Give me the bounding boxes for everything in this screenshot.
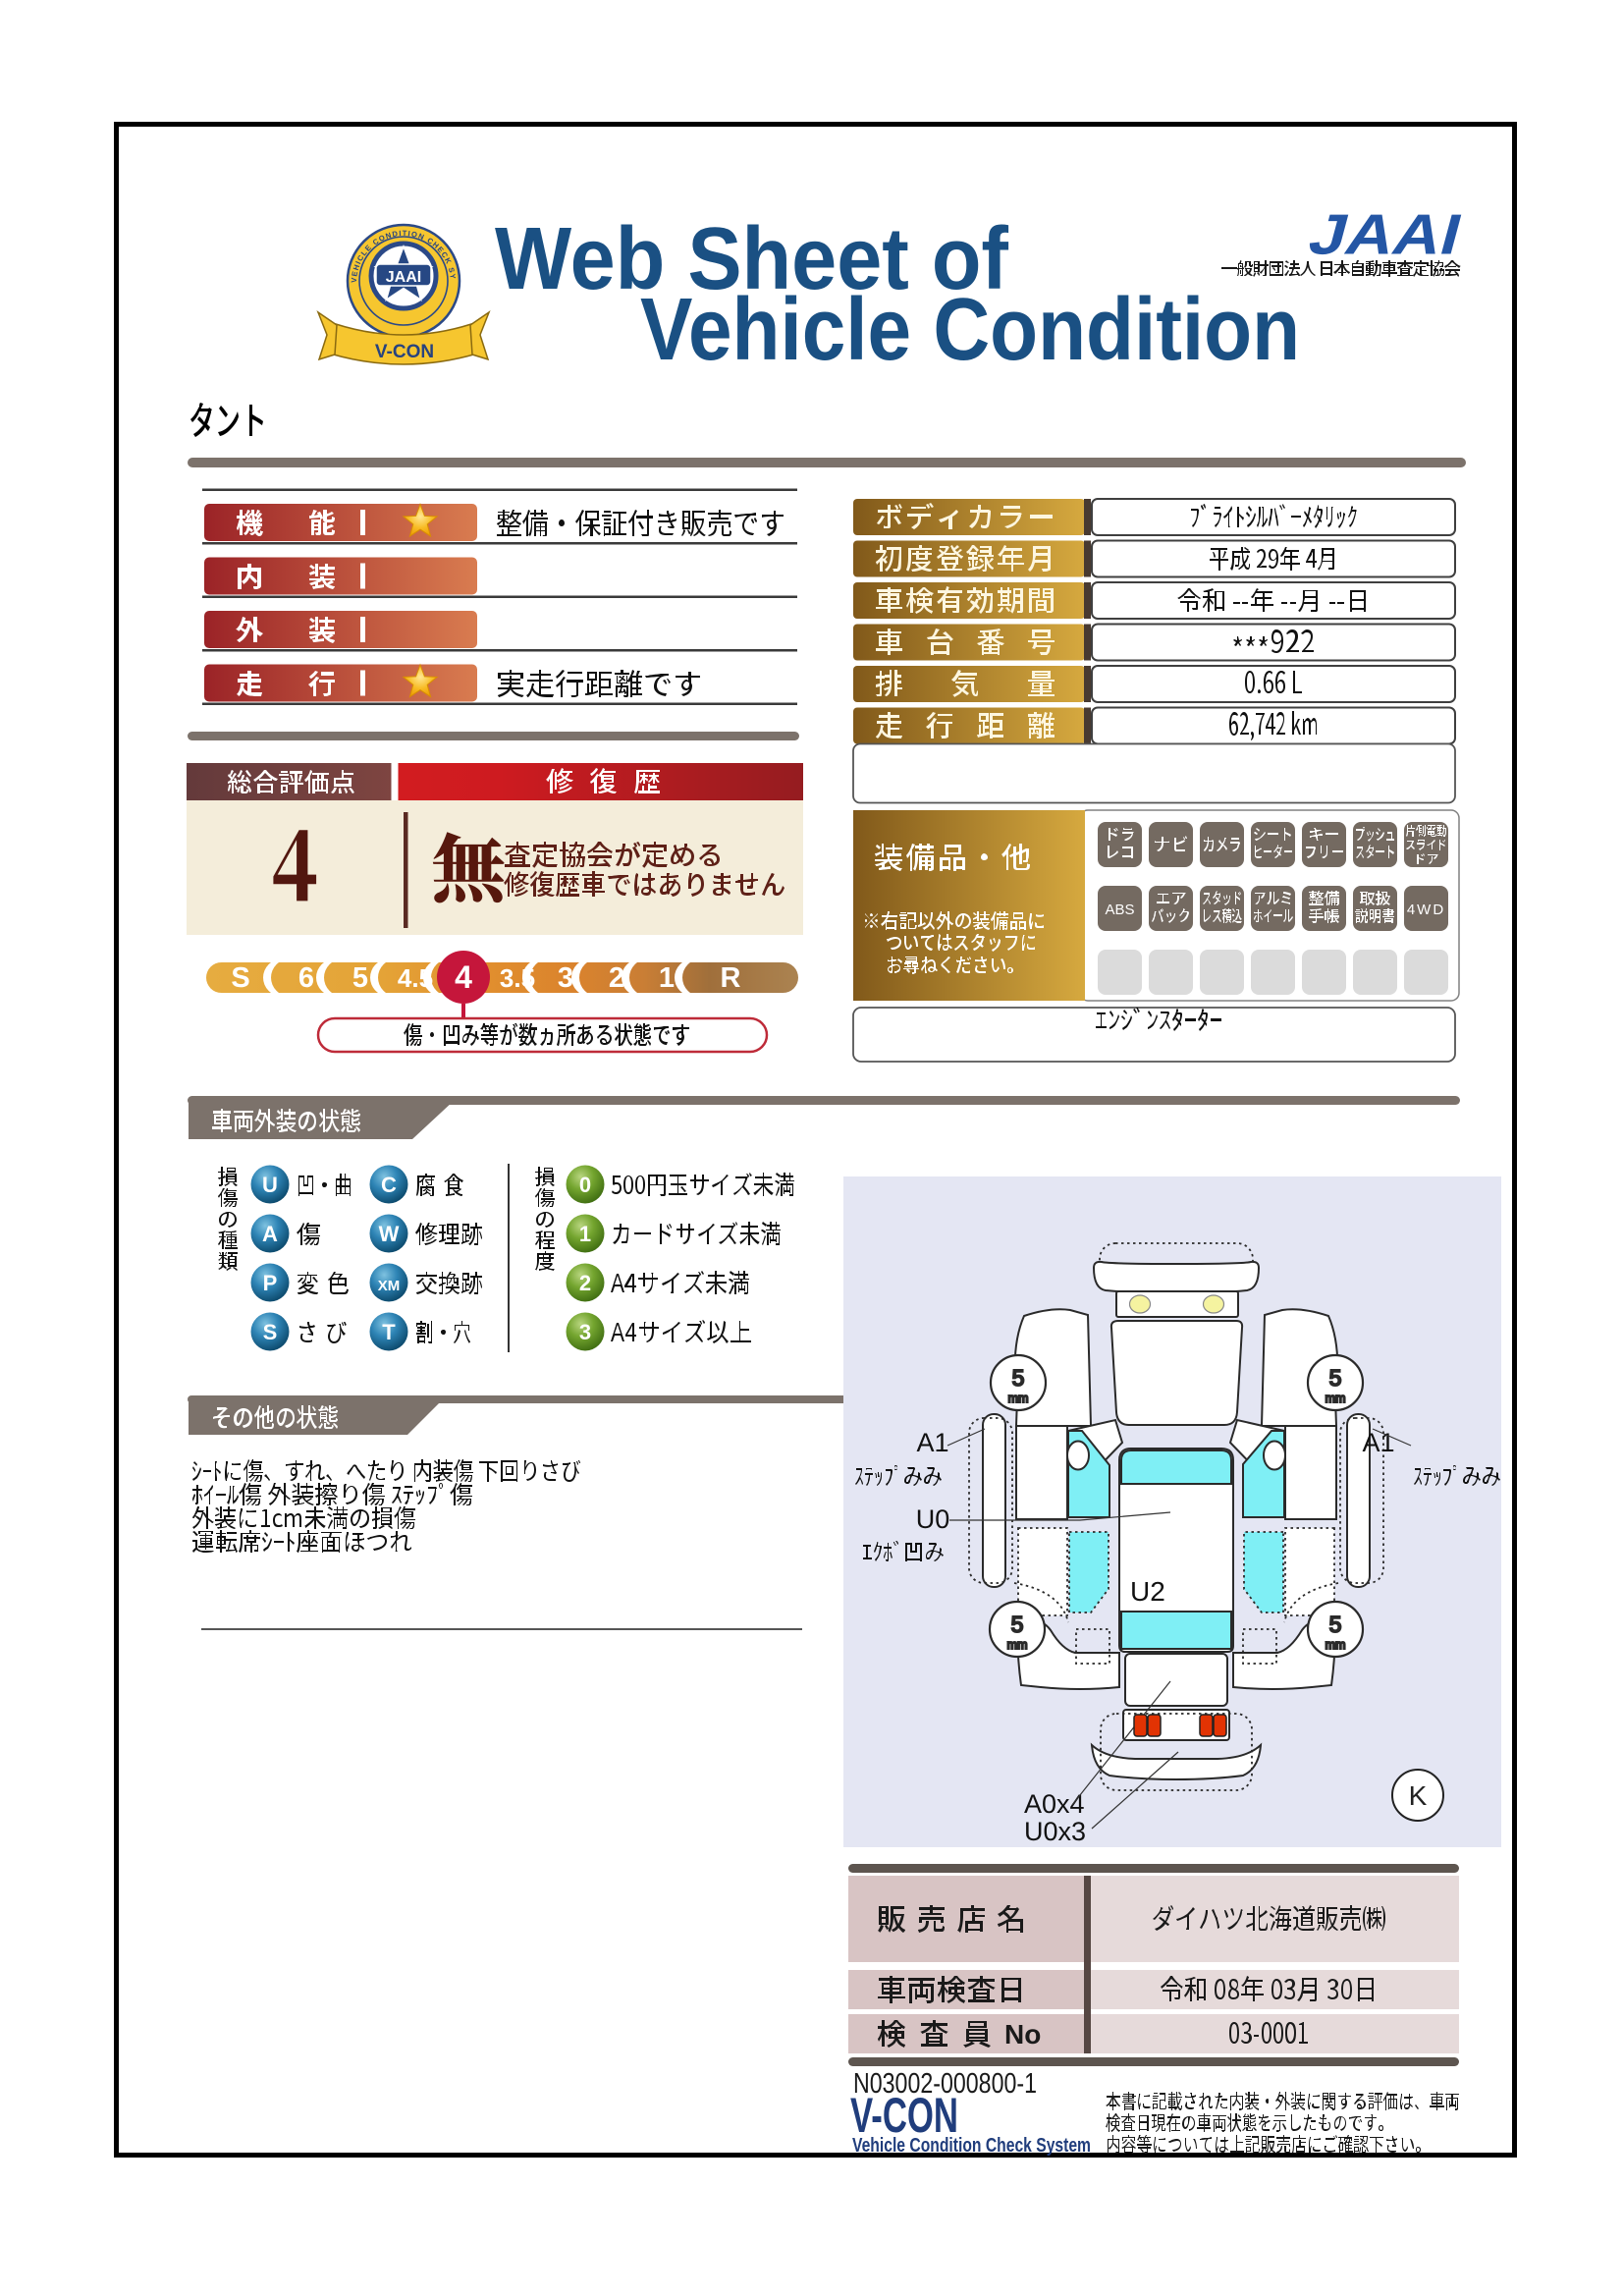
svg-text:2: 2 [579, 1271, 591, 1295]
svg-text:U0: U0 [916, 1504, 950, 1534]
svg-text:R: R [721, 962, 741, 994]
svg-text:JAAI: JAAI [1303, 202, 1469, 266]
svg-text:mm: mm [1008, 1392, 1029, 1405]
svg-text:Vehicle Condition: Vehicle Condition [640, 281, 1300, 379]
svg-text:1: 1 [579, 1222, 591, 1246]
svg-text:Vehicle Condition Check System: Vehicle Condition Check System [852, 2135, 1091, 2157]
svg-text:5: 5 [352, 962, 368, 994]
svg-text:No: No [1004, 2019, 1041, 2050]
svg-text:S: S [263, 1320, 278, 1344]
svg-text:5: 5 [1011, 1612, 1024, 1637]
svg-text:A1: A1 [1362, 1428, 1394, 1457]
svg-text:S: S [231, 962, 249, 994]
svg-text:mm: mm [1325, 1392, 1346, 1405]
svg-text:U2: U2 [1130, 1576, 1165, 1607]
svg-text:3: 3 [558, 962, 573, 994]
svg-text:mm: mm [1325, 1638, 1346, 1652]
svg-text:6: 6 [298, 962, 314, 994]
svg-text:JAAI: JAAI [386, 269, 421, 286]
svg-text:5: 5 [1329, 1612, 1342, 1637]
svg-text:P: P [263, 1271, 278, 1295]
svg-text:1: 1 [659, 962, 675, 994]
svg-text:U: U [262, 1173, 278, 1197]
svg-text:mm: mm [1007, 1638, 1028, 1652]
svg-text:2: 2 [609, 962, 624, 994]
svg-text:4WD: 4WD [1407, 902, 1445, 918]
svg-text:3: 3 [579, 1320, 591, 1344]
svg-text:A: A [262, 1222, 278, 1246]
svg-text:C: C [381, 1173, 397, 1197]
svg-text:W: W [379, 1222, 400, 1246]
svg-text:5: 5 [1329, 1365, 1342, 1391]
svg-text:T: T [382, 1320, 396, 1344]
svg-text:XM: XM [378, 1278, 401, 1294]
svg-text:A1: A1 [916, 1428, 948, 1457]
svg-text:4.5: 4.5 [398, 963, 433, 993]
svg-text:0: 0 [579, 1173, 591, 1197]
svg-text:4: 4 [455, 959, 472, 995]
svg-text:ABS: ABS [1105, 902, 1134, 918]
svg-text:A0x4: A0x4 [1024, 1789, 1085, 1819]
svg-text:3.5: 3.5 [500, 963, 535, 993]
svg-text:5: 5 [1012, 1365, 1025, 1391]
svg-text:K: K [1409, 1780, 1428, 1811]
svg-text:U0x3: U0x3 [1024, 1817, 1086, 1846]
svg-text:V-CON: V-CON [375, 342, 434, 362]
